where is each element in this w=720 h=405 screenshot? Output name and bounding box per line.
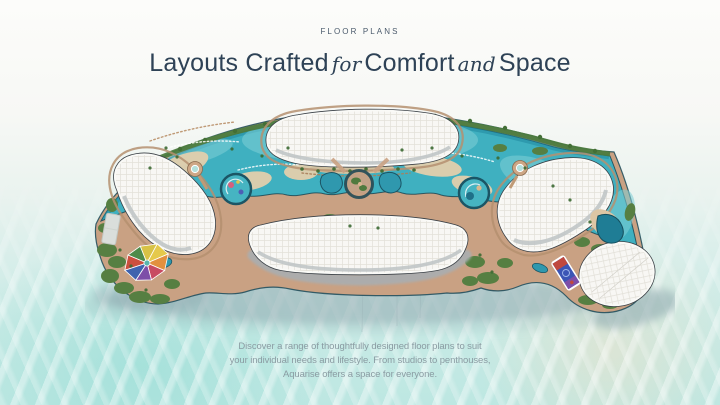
title-italic-1: for xyxy=(332,52,362,76)
description-line-3: Aquarise offers a space for everyone. xyxy=(0,368,720,382)
masterplan-rendering xyxy=(85,100,675,345)
floor-plans-section: { "section": { "eyebrow": "FLOOR PLANS",… xyxy=(0,0,720,405)
section-eyebrow: FLOOR PLANS xyxy=(0,27,720,36)
section-title: Layouts CraftedforComfortandSpace xyxy=(0,49,720,78)
building-bottom-curve xyxy=(250,216,467,274)
description-line-2: your individual needs and lifestyle. Fro… xyxy=(0,354,720,368)
splash-pool-left xyxy=(221,174,251,204)
title-part-1: Layouts Crafted xyxy=(149,49,329,77)
section-description: Discover a range of thoughtfully designe… xyxy=(0,340,720,382)
splash-pool-right xyxy=(459,178,489,208)
title-part-3: Space xyxy=(499,49,571,77)
title-italic-2: and xyxy=(458,52,496,76)
description-line-1: Discover a range of thoughtfully designe… xyxy=(0,340,720,354)
title-part-2: Comfort xyxy=(364,49,454,77)
section-header: FLOOR PLANS Layouts CraftedforComfortand… xyxy=(0,27,720,78)
